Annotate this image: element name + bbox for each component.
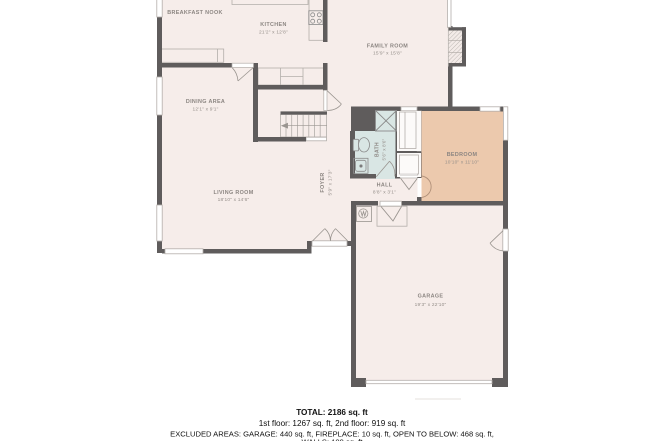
svg-text:18'10" x 14'6": 18'10" x 14'6" (218, 197, 250, 203)
svg-text:12'1" x 9'1": 12'1" x 9'1" (192, 107, 218, 113)
svg-text:BATH: BATH (375, 142, 381, 157)
svg-text:DINING AREA: DINING AREA (186, 99, 225, 105)
svg-text:FAMILY ROOM: FAMILY ROOM (367, 44, 408, 50)
svg-text:LIVING ROOM: LIVING ROOM (213, 190, 253, 196)
svg-text:1st floor: 1267 sq. ft, 2nd fl: 1st floor: 1267 sq. ft, 2nd floor: 919 s… (259, 419, 406, 428)
svg-text:BEDROOM: BEDROOM (447, 152, 478, 158)
svg-text:5'9" x 17'3": 5'9" x 17'3" (328, 169, 334, 195)
svg-text:WALLS: 109 sq. ft: WALLS: 109 sq. ft (302, 438, 364, 441)
svg-text:21'2" x 12'8": 21'2" x 12'8" (259, 30, 288, 36)
svg-text:10'10" x 11'10": 10'10" x 11'10" (445, 160, 479, 166)
svg-text:5'6" x 8'6": 5'6" x 8'6" (382, 138, 387, 160)
svg-text:8'8" x 3'1": 8'8" x 3'1" (373, 190, 396, 196)
svg-text:GARAGE: GARAGE (418, 294, 444, 300)
svg-text:HALL: HALL (377, 183, 393, 189)
svg-text:15'9" x 15'8": 15'9" x 15'8" (373, 51, 402, 57)
svg-text:BREAKFAST NOOK: BREAKFAST NOOK (167, 10, 223, 16)
svg-text:TOTAL: 2186 sq. ft: TOTAL: 2186 sq. ft (296, 408, 368, 417)
svg-text:FOYER: FOYER (320, 172, 326, 192)
svg-text:19'3" x 22'10": 19'3" x 22'10" (415, 302, 447, 308)
svg-text:KITCHEN: KITCHEN (260, 22, 286, 28)
